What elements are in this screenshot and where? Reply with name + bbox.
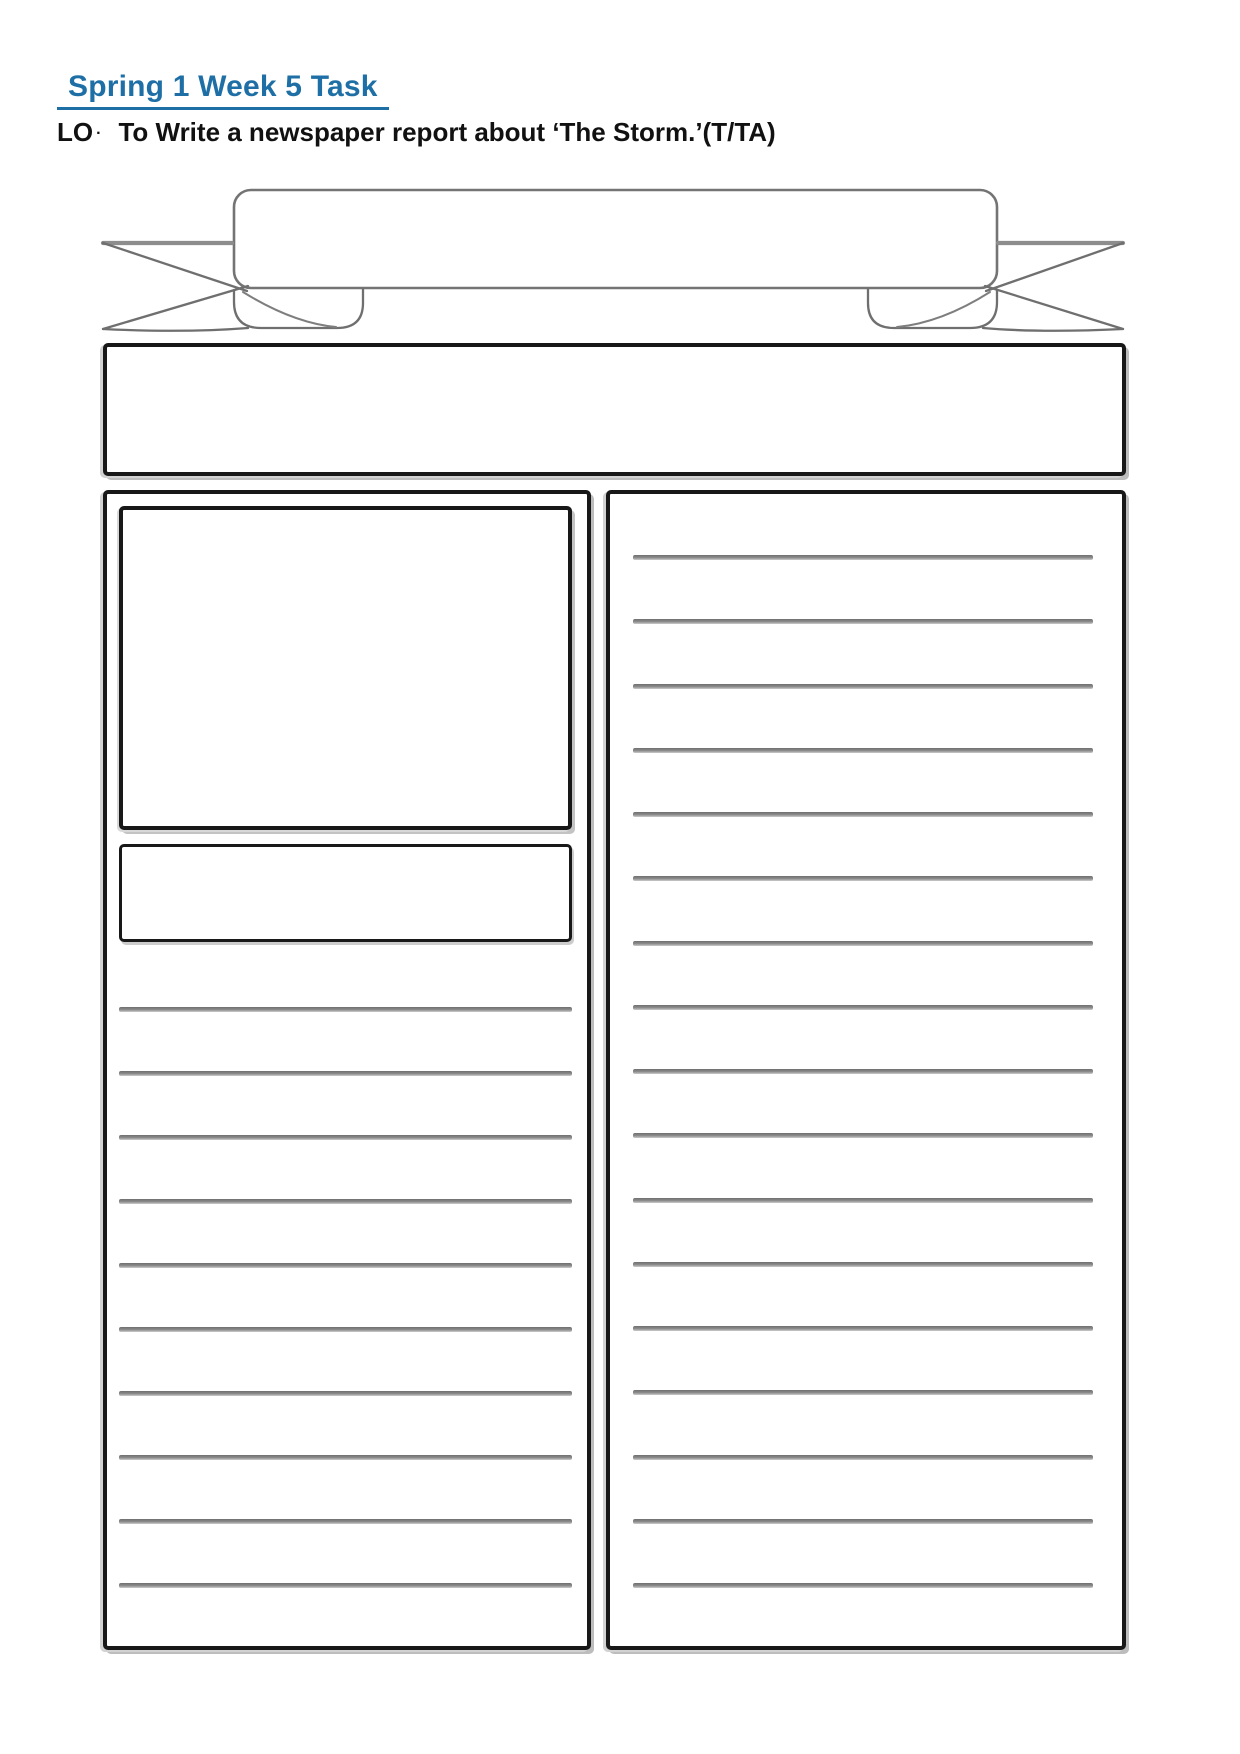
- writing-line[interactable]: [633, 684, 1093, 689]
- writing-line[interactable]: [633, 619, 1093, 624]
- writing-line[interactable]: [633, 555, 1093, 560]
- writing-line[interactable]: [633, 1005, 1093, 1010]
- writing-line[interactable]: [633, 1262, 1093, 1267]
- writing-line[interactable]: [633, 941, 1093, 946]
- writing-line[interactable]: [633, 812, 1093, 817]
- writing-line[interactable]: [119, 1391, 572, 1396]
- writing-line[interactable]: [633, 876, 1093, 881]
- writing-line[interactable]: [633, 1133, 1093, 1138]
- writing-line[interactable]: [633, 1583, 1093, 1588]
- worksheet-page: Spring 1 Week 5 Task LO·To Write a newsp…: [0, 0, 1240, 1754]
- page-title: Spring 1 Week 5 Task: [57, 70, 389, 110]
- page-title-text: Spring 1 Week 5 Task: [57, 70, 378, 103]
- writing-line[interactable]: [119, 1199, 572, 1204]
- writing-line[interactable]: [633, 1198, 1093, 1203]
- writing-line[interactable]: [119, 1519, 572, 1524]
- writing-line[interactable]: [119, 1583, 572, 1588]
- lo-prefix: LO: [57, 117, 93, 147]
- writing-line[interactable]: [119, 1455, 572, 1460]
- picture-field[interactable]: [119, 506, 572, 830]
- learning-objective: LO·To Write a newspaper report about ‘Th…: [57, 117, 776, 148]
- writing-line[interactable]: [633, 748, 1093, 753]
- writing-line[interactable]: [633, 1390, 1093, 1395]
- right-article-column: [606, 490, 1126, 1650]
- writing-line[interactable]: [119, 1263, 572, 1268]
- lo-text: To Write a newspaper report about ‘The S…: [118, 117, 775, 147]
- headline-field[interactable]: [103, 343, 1126, 476]
- masthead-name-field[interactable]: [234, 190, 997, 288]
- writing-line[interactable]: [633, 1326, 1093, 1331]
- writing-line[interactable]: [119, 1071, 572, 1076]
- left-article-column: [103, 490, 591, 1650]
- writing-line[interactable]: [633, 1455, 1093, 1460]
- lo-bullet: ·: [96, 125, 101, 142]
- writing-line[interactable]: [633, 1069, 1093, 1074]
- writing-line[interactable]: [119, 1327, 572, 1332]
- caption-field[interactable]: [119, 844, 572, 942]
- writing-line[interactable]: [119, 1007, 572, 1012]
- writing-line[interactable]: [119, 1135, 572, 1140]
- writing-line[interactable]: [633, 1519, 1093, 1524]
